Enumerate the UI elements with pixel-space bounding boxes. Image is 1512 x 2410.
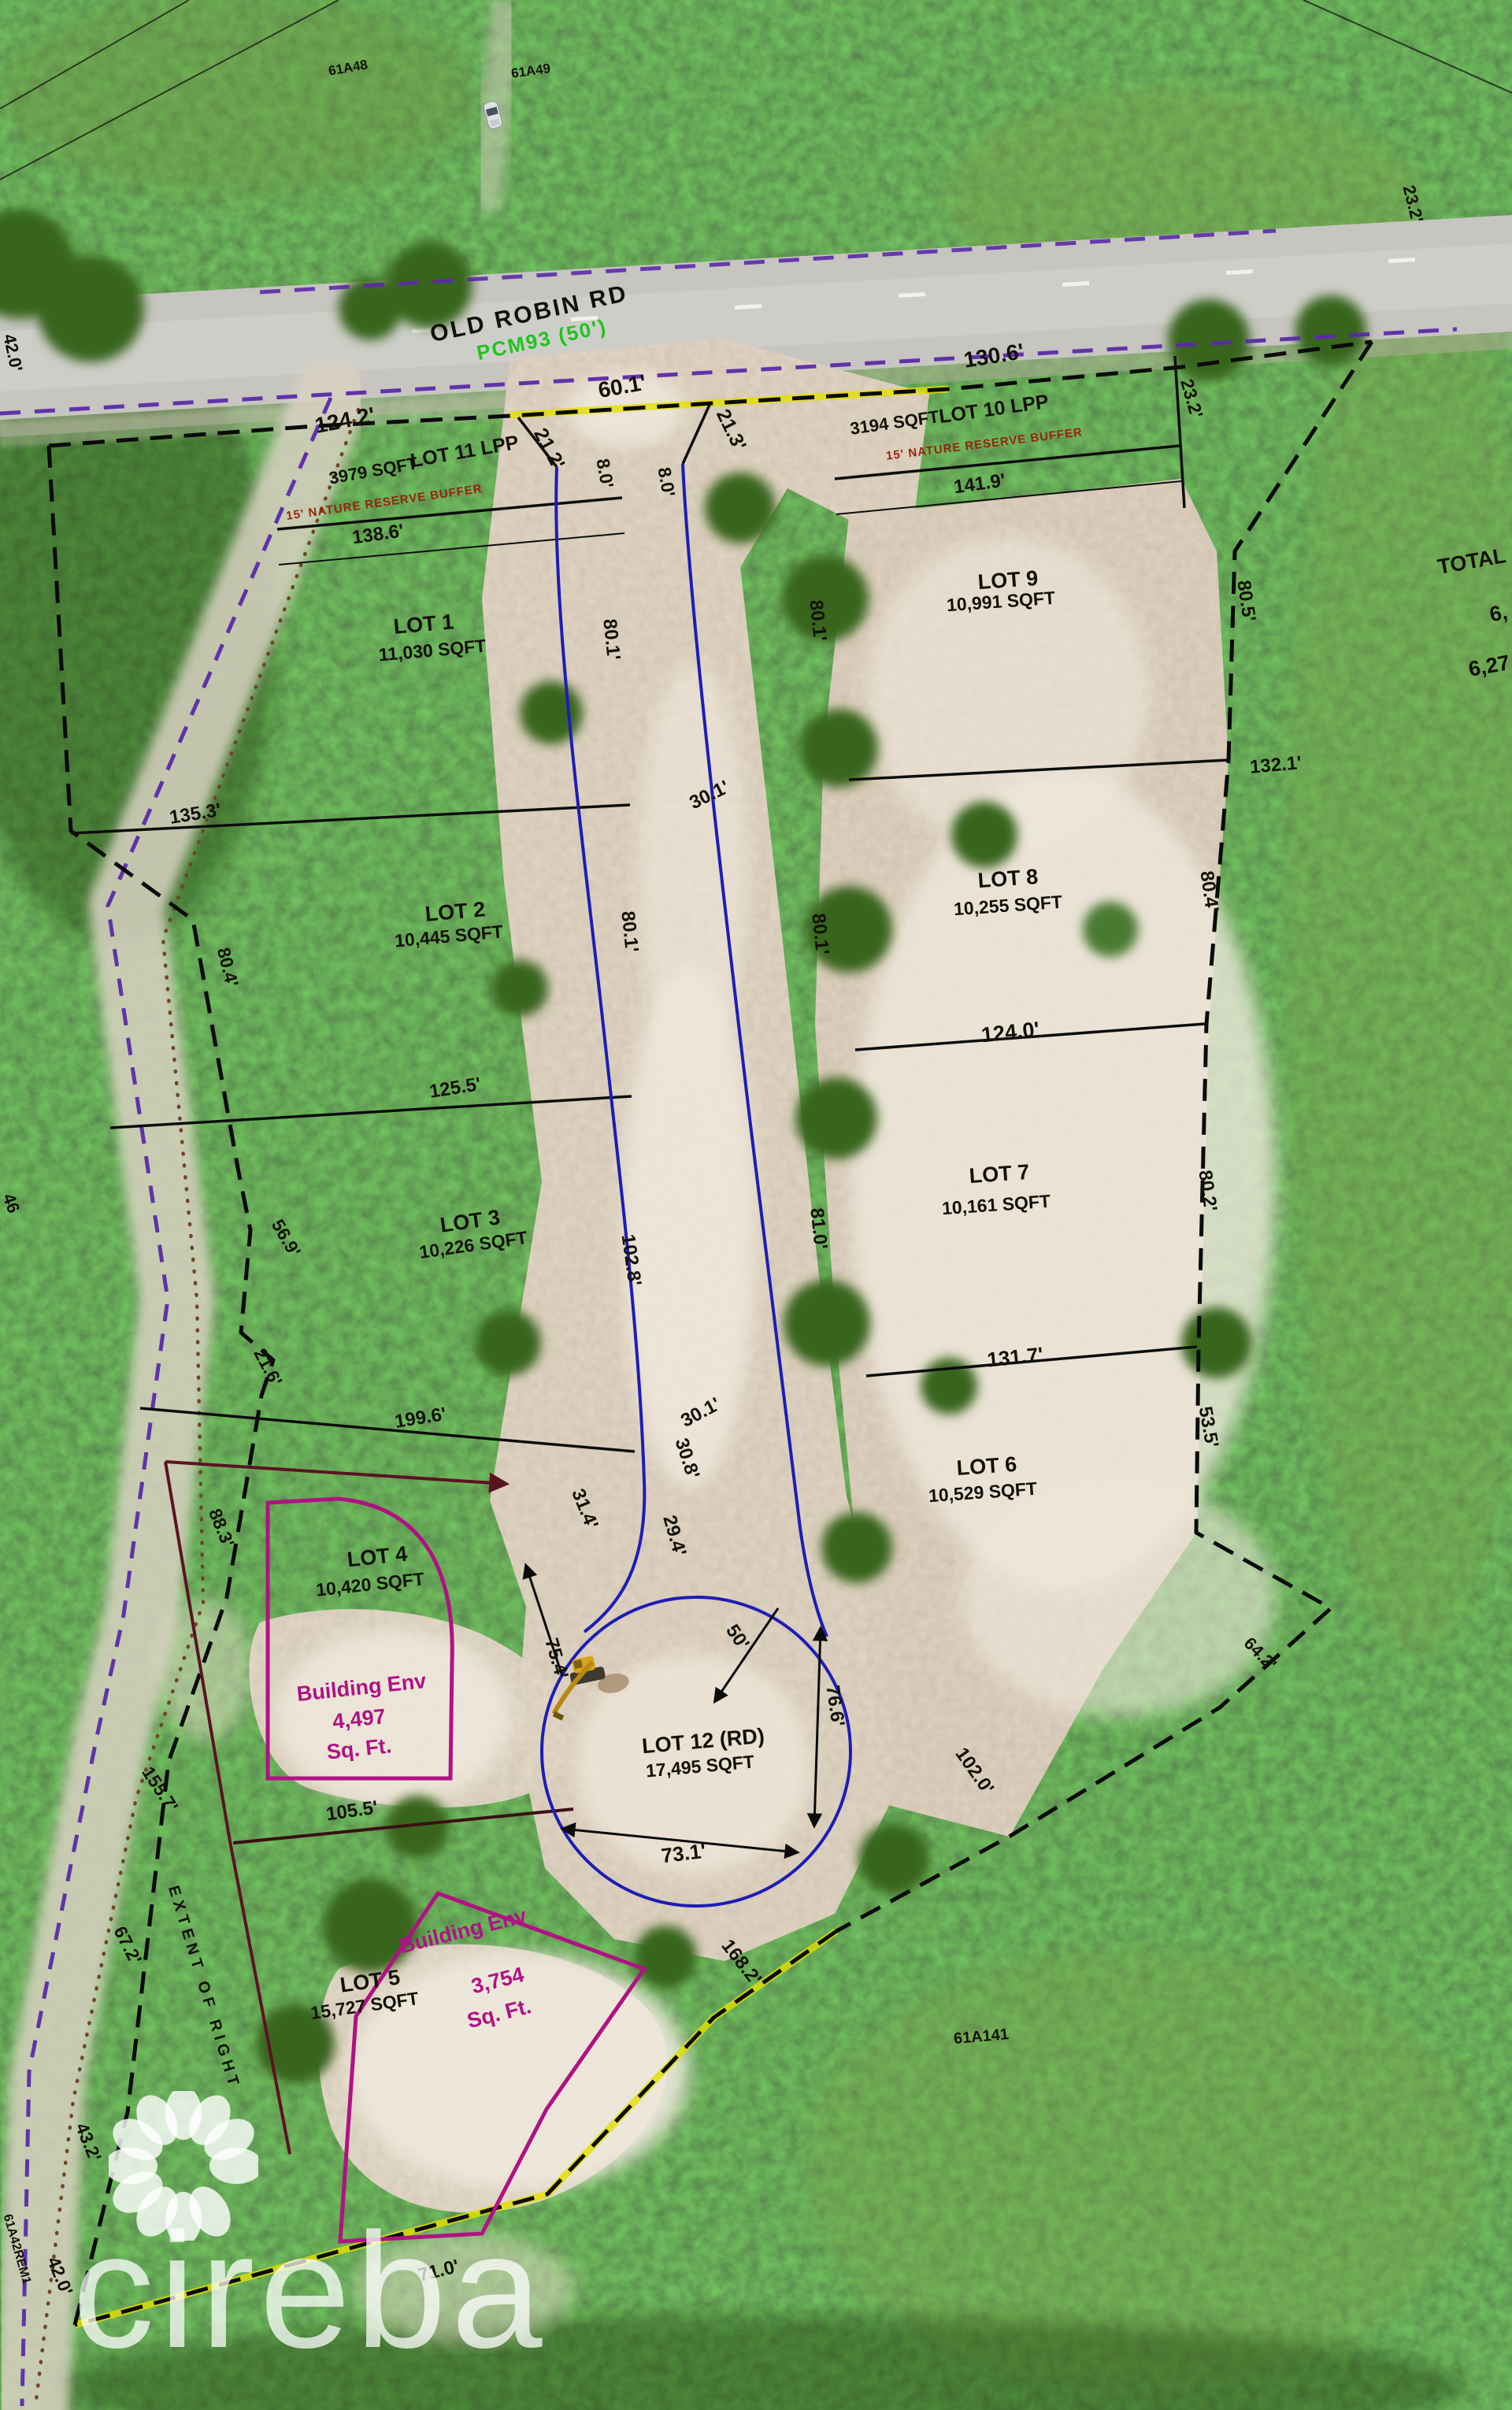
aerial-survey-plat-photo: OLD ROBIN RDPCM93 (50')61A4861A49124.2'6… <box>0 0 1512 2410</box>
plat-overlay-graph <box>0 0 1512 2410</box>
